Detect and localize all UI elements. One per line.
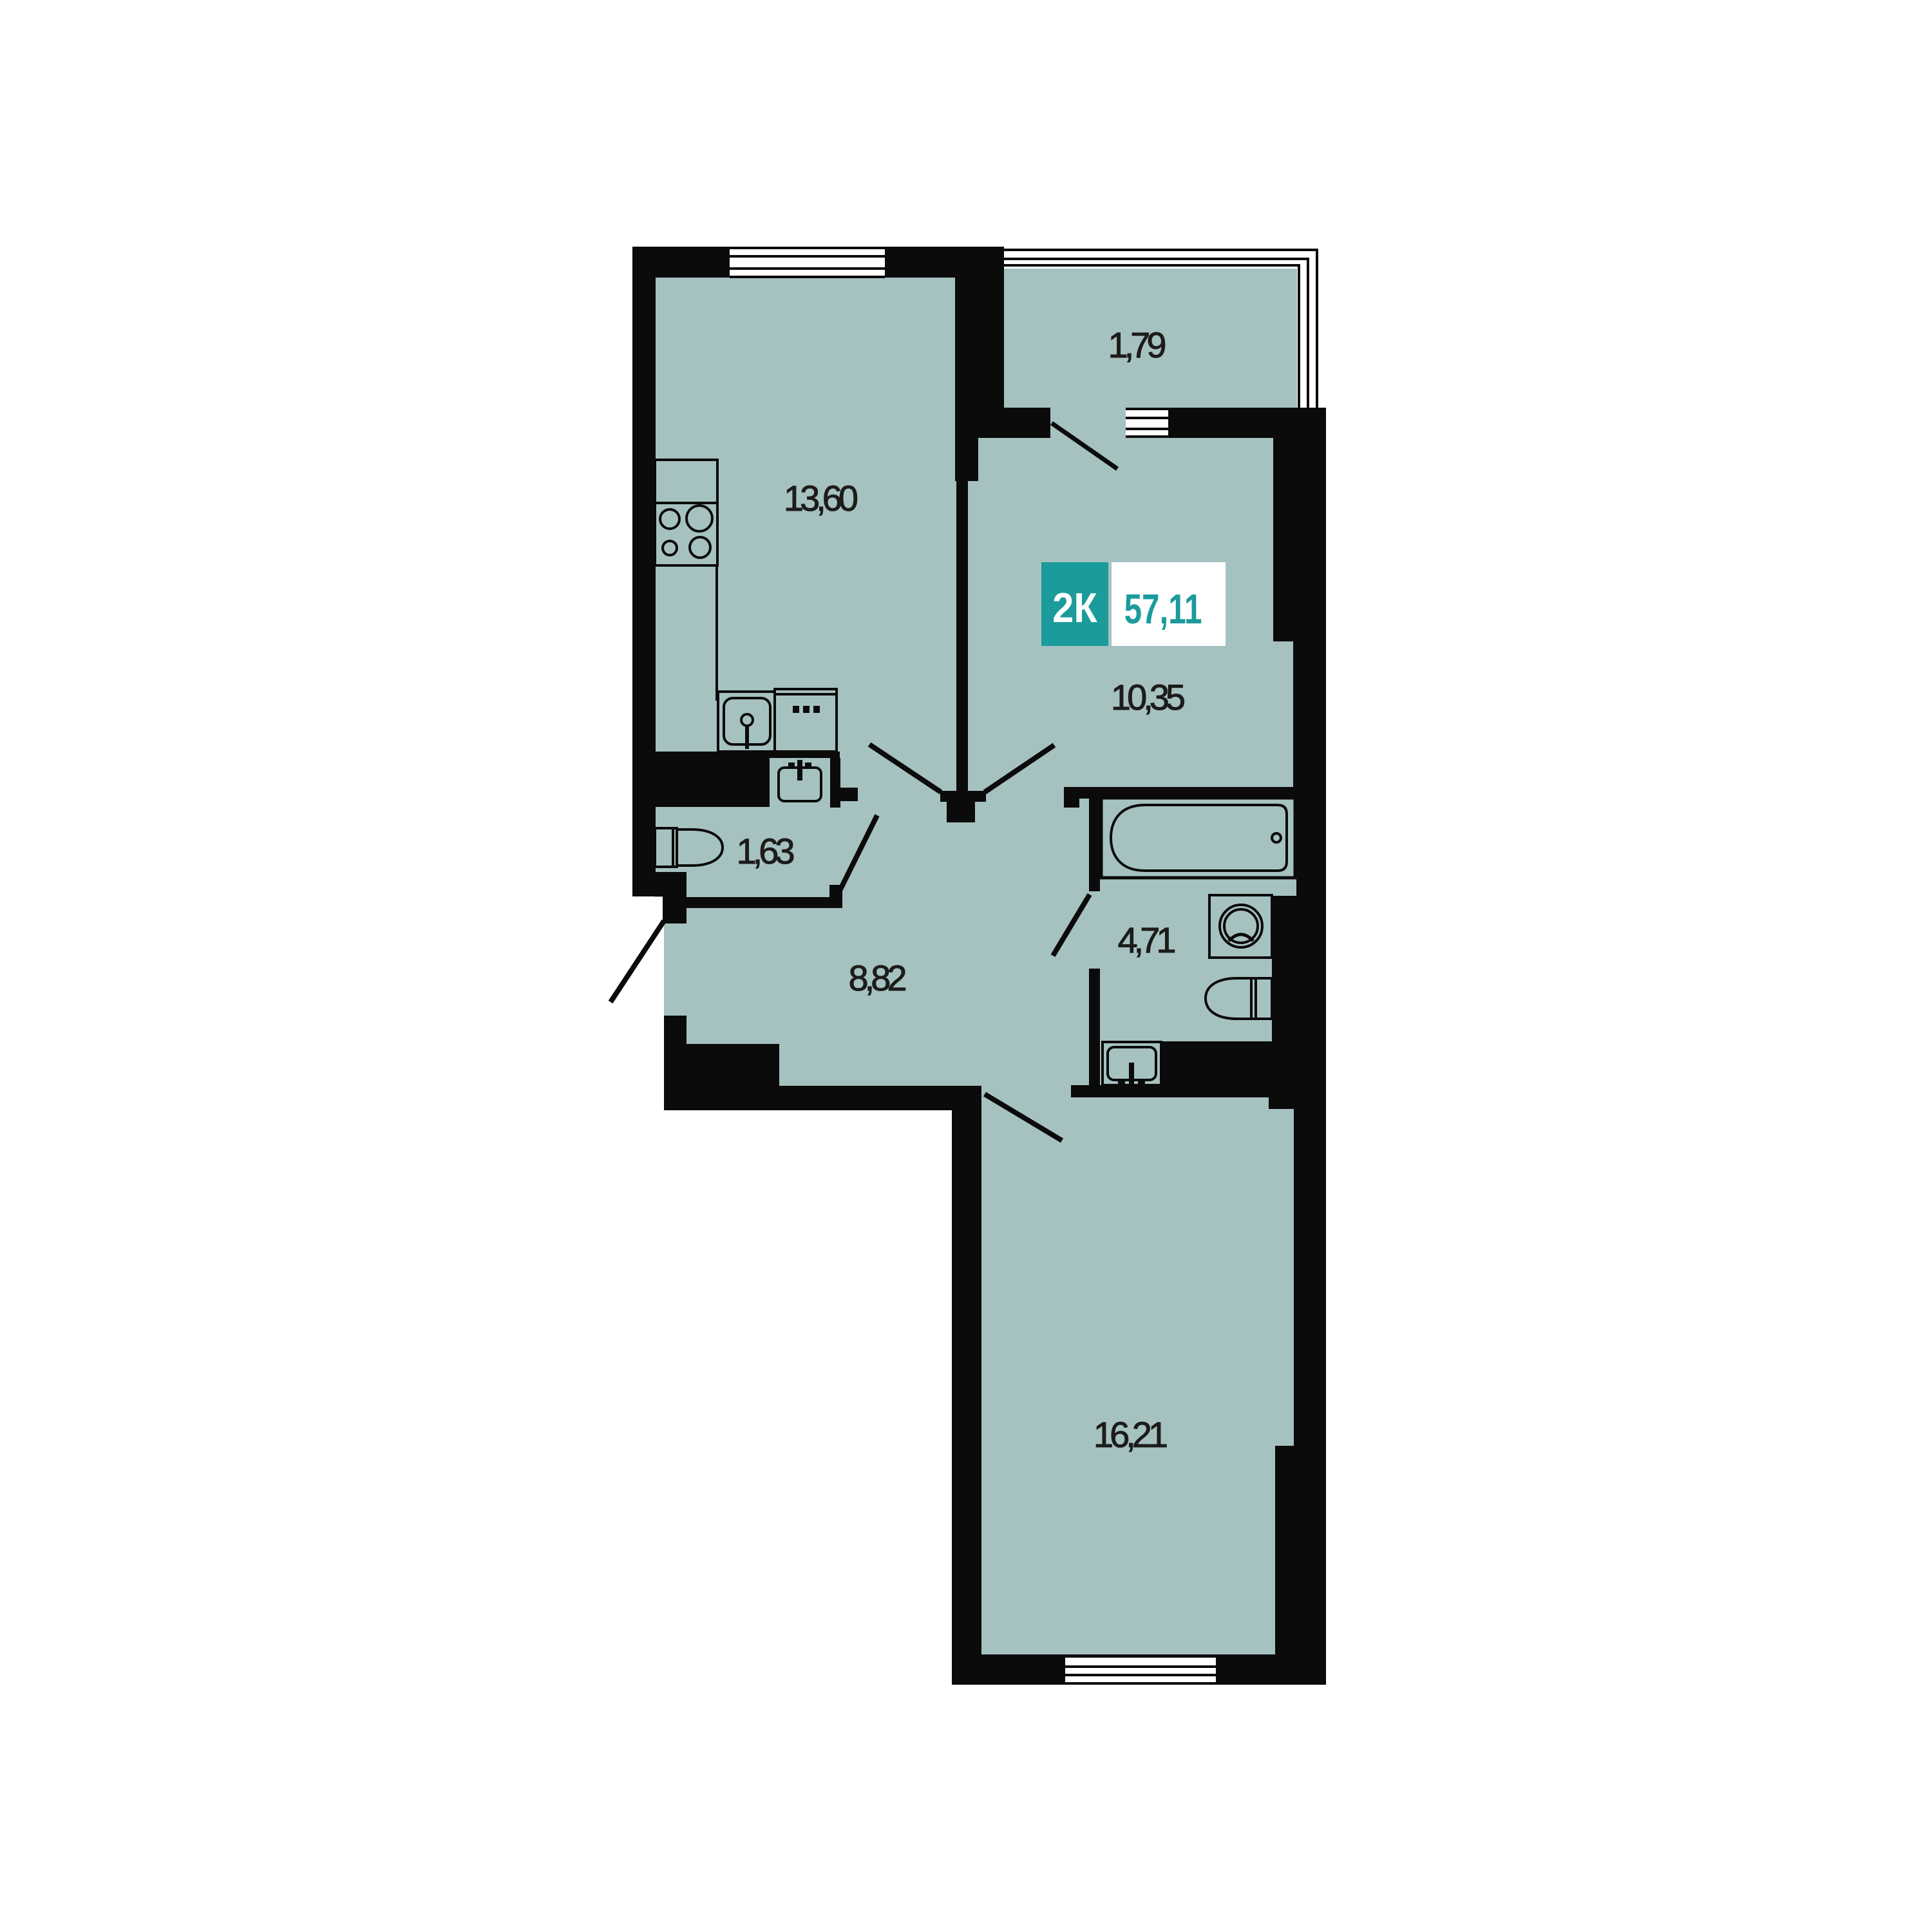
svg-text:2К: 2К — [1052, 585, 1098, 632]
svg-text:57,11: 57,11 — [1124, 587, 1202, 633]
svg-text:10,35: 10,35 — [1111, 677, 1184, 717]
svg-text:1,63: 1,63 — [737, 831, 794, 871]
svg-text:16,21: 16,21 — [1094, 1414, 1167, 1455]
svg-text:4,71: 4,71 — [1118, 920, 1175, 960]
svg-text:8,82: 8,82 — [849, 958, 906, 998]
svg-text:13,60: 13,60 — [784, 478, 857, 518]
svg-text:1,79: 1,79 — [1108, 325, 1166, 365]
